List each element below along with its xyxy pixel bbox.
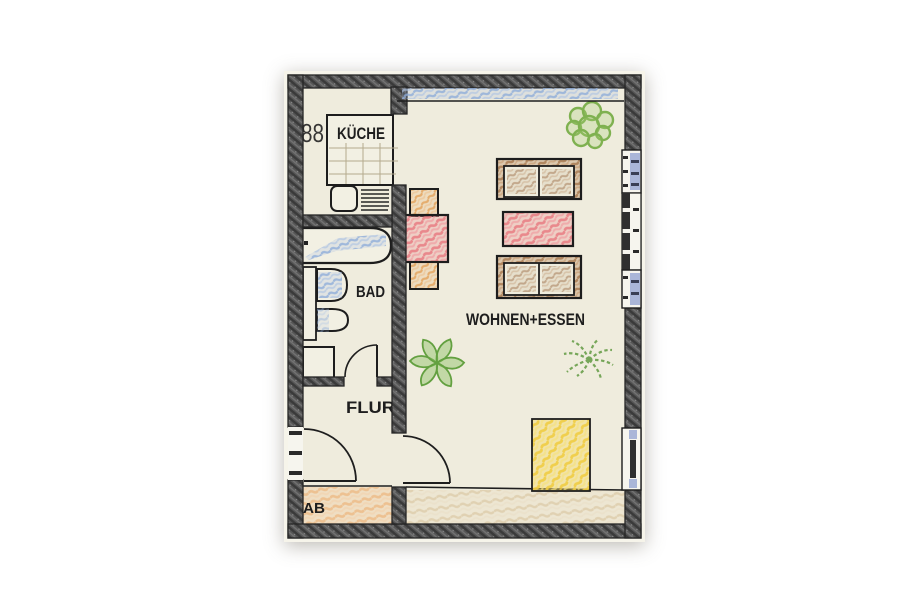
bed-rug xyxy=(532,419,590,491)
washing-machine-icon xyxy=(303,347,334,378)
washbasin-shading xyxy=(318,272,342,298)
sofa-bottom xyxy=(497,256,581,298)
wall-core-vertical xyxy=(392,185,406,433)
sofa-top xyxy=(497,159,581,199)
toilet-shading xyxy=(317,308,329,332)
kitchen-label: KÜCHE xyxy=(337,124,385,143)
window-right-lower xyxy=(622,270,641,308)
cooktop-burners-icon: 88 xyxy=(301,118,324,148)
wall-bottom xyxy=(288,524,641,538)
bath-label: BAD xyxy=(356,284,385,301)
floorplan-drawing: 88 KÜCHE BAD xyxy=(0,0,920,614)
bathtub-drain xyxy=(304,241,308,245)
dining-chair-bottom xyxy=(410,262,438,289)
floorplan-page: 88 KÜCHE BAD xyxy=(0,0,920,614)
terrace-strip-shading xyxy=(406,490,625,524)
wall-kitchen-bath-divider xyxy=(303,215,392,227)
living-label: WOHNEN+ESSEN xyxy=(466,311,585,329)
wall-bath-south-west xyxy=(303,377,344,386)
wall-left-upper xyxy=(288,75,303,427)
entrance-opening xyxy=(288,427,303,480)
kitchen-sink-icon xyxy=(331,186,357,211)
utility-shaft xyxy=(303,267,316,340)
window-right-middle-mullions xyxy=(622,193,641,270)
window-right-bottom xyxy=(622,428,641,490)
window-top-glazing xyxy=(402,88,618,99)
dining-chair-top xyxy=(410,189,438,216)
coffee-table xyxy=(503,212,573,246)
wall-strip-divider xyxy=(392,487,406,524)
window-right-upper xyxy=(622,150,641,193)
wall-top xyxy=(288,75,641,88)
storage-label: AB xyxy=(303,500,325,517)
wall-bath-south-stub xyxy=(377,377,392,386)
dining-table xyxy=(405,215,448,262)
hall-label: FLUR xyxy=(346,398,395,417)
